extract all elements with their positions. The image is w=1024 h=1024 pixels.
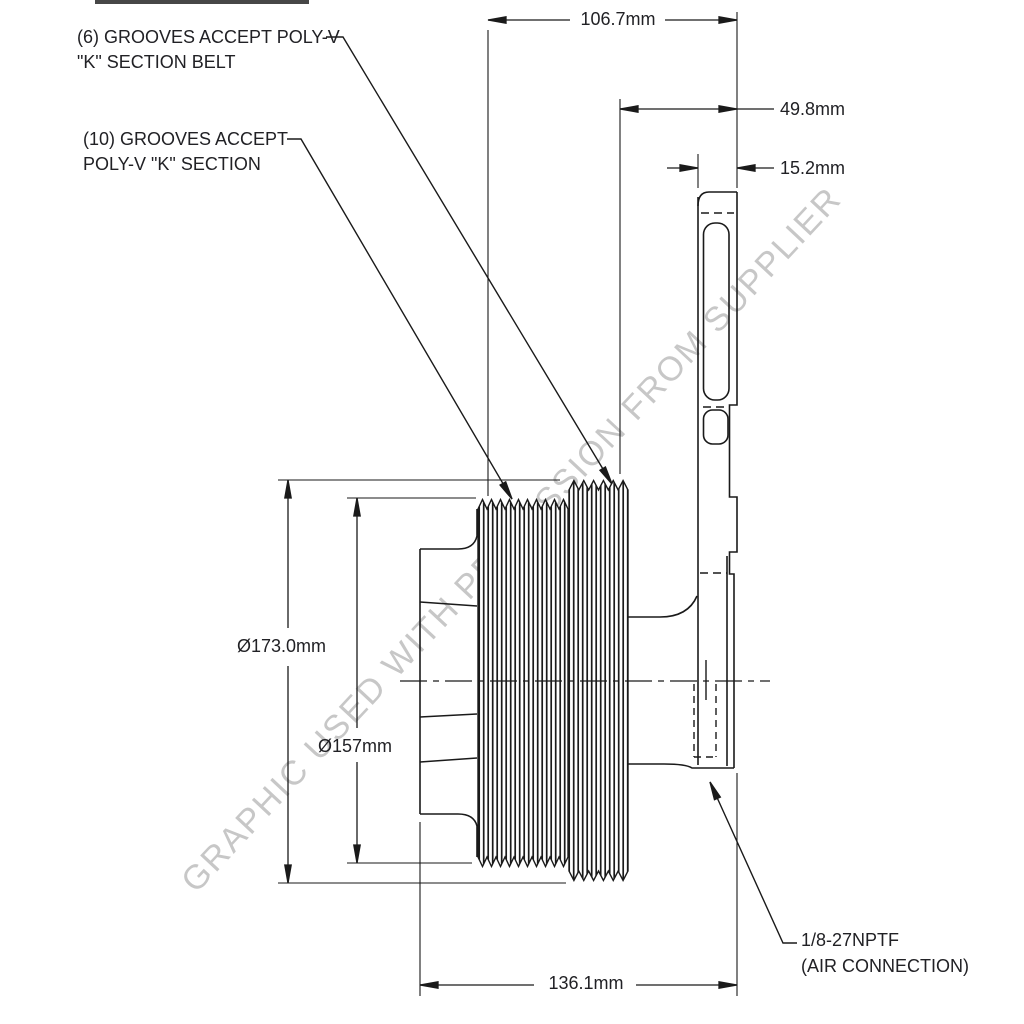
dim-outer-diameter xyxy=(285,480,291,883)
leader-air-connection xyxy=(710,782,797,943)
note-air-connection: 1/8-27NPTF (AIR CONNECTION) xyxy=(801,927,969,979)
note-air-connection-line1: 1/8-27NPTF xyxy=(801,927,969,953)
leader-grooves-6 xyxy=(326,37,612,484)
dim-label-flange-offset: 49.8mm xyxy=(780,99,845,120)
cropped-top-edge xyxy=(95,0,309,4)
note-grooves-6: (6) GROOVES ACCEPT POLY-V "K" SECTION BE… xyxy=(77,25,340,75)
pulley-body-cone xyxy=(420,509,477,857)
groove-section-10 xyxy=(478,500,568,867)
dim-label-body-length: 136.1mm xyxy=(538,973,634,994)
dim-flange-offset xyxy=(620,106,774,112)
note-grooves-10-line1: (10) GROOVES ACCEPT xyxy=(83,127,288,152)
note-air-connection-line2: (AIR CONNECTION) xyxy=(801,953,969,979)
note-grooves-10-line2: POLY-V "K" SECTION xyxy=(83,152,288,177)
note-grooves-6-line2: "K" SECTION BELT xyxy=(77,50,340,75)
dim-label-outer-diameter: Ø173.0mm xyxy=(237,636,326,657)
dim-label-inner-diameter: Ø157mm xyxy=(318,736,392,757)
dim-flange-thickness xyxy=(667,165,774,171)
hub xyxy=(628,596,734,768)
dim-label-overall-width: 106.7mm xyxy=(572,9,664,30)
leader-grooves-10 xyxy=(287,139,512,499)
dim-inner-diameter xyxy=(354,498,360,863)
note-grooves-6-line1: (6) GROOVES ACCEPT POLY-V xyxy=(77,25,340,50)
note-grooves-10: (10) GROOVES ACCEPT POLY-V "K" SECTION xyxy=(83,127,288,177)
technical-drawing-canvas: GRAPHIC USED WITH PERMISSION FROM SUPPLI… xyxy=(0,0,1024,1024)
dim-label-flange-thickness: 15.2mm xyxy=(780,158,845,179)
